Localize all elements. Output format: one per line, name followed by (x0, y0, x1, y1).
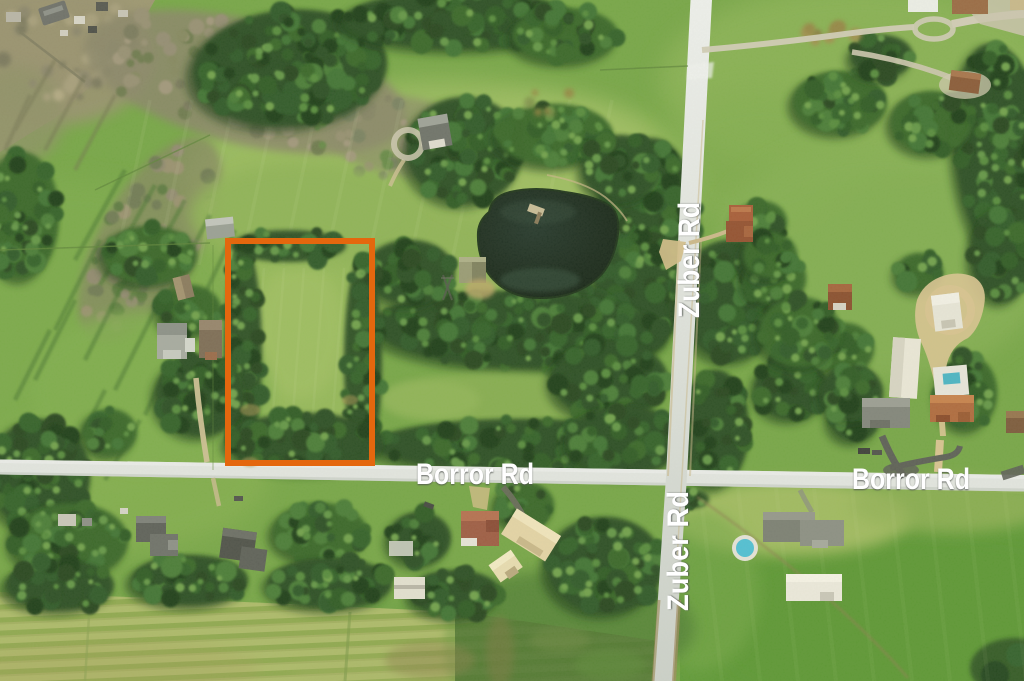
svg-text:Zuber Rd: Zuber Rd (662, 491, 695, 611)
svg-text:Borror Rd: Borror Rd (416, 458, 534, 491)
svg-text:Borror Rd: Borror Rd (852, 463, 970, 496)
svg-text:Zuber Rd: Zuber Rd (673, 202, 706, 318)
